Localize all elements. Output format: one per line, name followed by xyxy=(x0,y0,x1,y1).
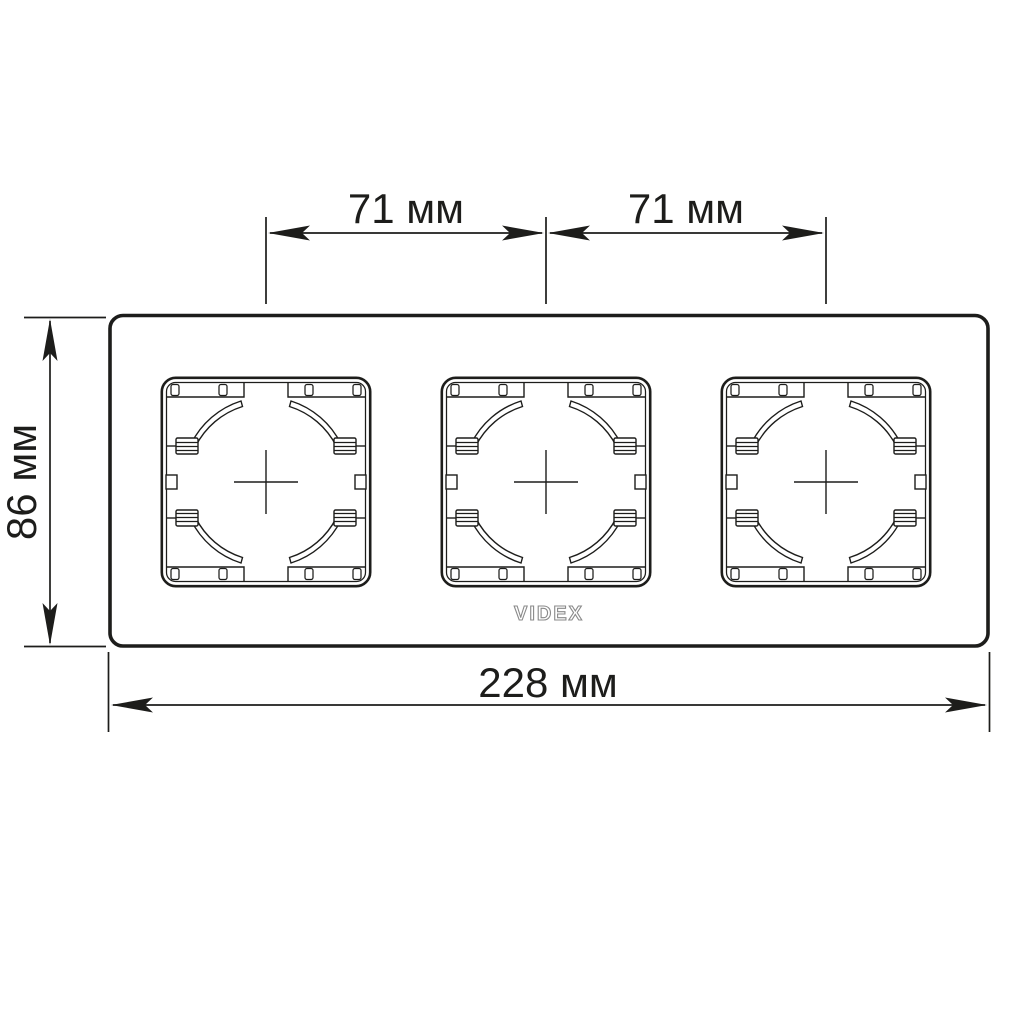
diagram-canvas: VIDEX 71 мм 71 мм 86 мм 228 мм xyxy=(0,0,1024,1024)
socket-opening-1 xyxy=(162,378,370,586)
dimension-bottom: 228 мм xyxy=(109,652,990,732)
videx-logo: VIDEX xyxy=(514,603,584,625)
dimension-label-top-right: 71 мм xyxy=(628,185,744,232)
frame-outline xyxy=(110,316,988,647)
dimension-label-left: 86 мм xyxy=(0,424,45,540)
dimension-label-bottom: 228 мм xyxy=(478,659,618,706)
socket-opening-2 xyxy=(442,378,650,586)
dimension-left: 86 мм xyxy=(0,318,106,647)
dimension-top-right: 71 мм xyxy=(548,185,826,304)
dimension-label-top-left: 71 мм xyxy=(348,185,464,232)
dimension-top-left: 71 мм xyxy=(266,185,546,304)
socket-opening-3 xyxy=(722,378,930,586)
technical-drawing-svg: VIDEX 71 мм 71 мм 86 мм 228 мм xyxy=(0,0,1024,1024)
